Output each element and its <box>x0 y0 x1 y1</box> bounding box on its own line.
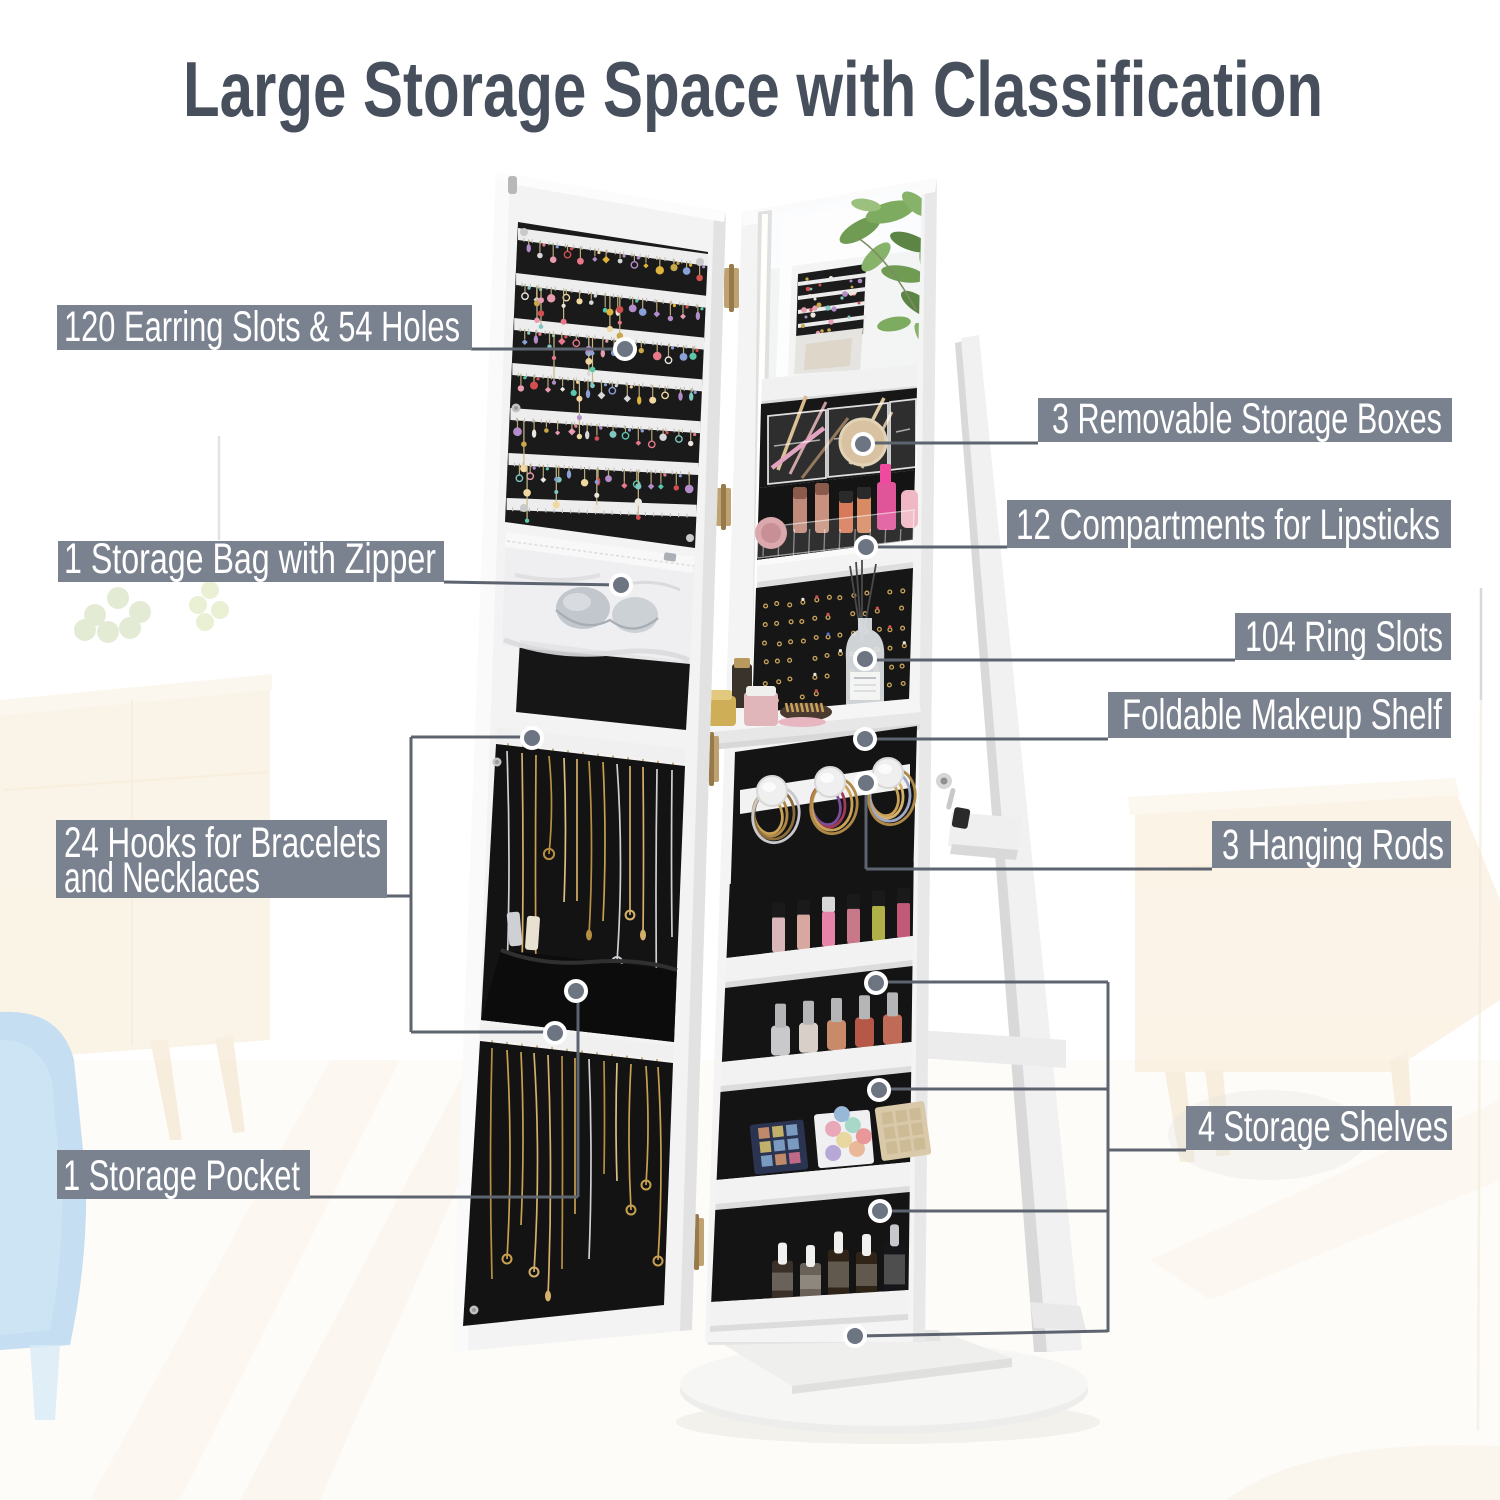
svg-text:and Necklaces: and Necklaces <box>64 854 260 902</box>
svg-text:12 Compartments for Lipsticks: 12 Compartments for Lipsticks <box>1016 501 1440 549</box>
svg-text:104 Ring Slots: 104 Ring Slots <box>1245 613 1443 661</box>
svg-text:1 Storage Bag with Zipper: 1 Storage Bag with Zipper <box>64 535 436 583</box>
svg-text:120 Earring Slots & 54 Holes: 120 Earring Slots & 54 Holes <box>64 303 460 351</box>
svg-text:4 Storage Shelves: 4 Storage Shelves <box>1198 1103 1448 1151</box>
svg-text:Foldable Makeup Shelf: Foldable Makeup Shelf <box>1122 691 1443 739</box>
svg-text:Large Storage Space with Class: Large Storage Space with Classification <box>183 45 1323 133</box>
svg-text:3 Hanging Rods: 3 Hanging Rods <box>1222 821 1444 869</box>
svg-text:3 Removable Storage Boxes: 3 Removable Storage Boxes <box>1052 395 1442 443</box>
svg-text:1 Storage Pocket: 1 Storage Pocket <box>63 1152 300 1200</box>
